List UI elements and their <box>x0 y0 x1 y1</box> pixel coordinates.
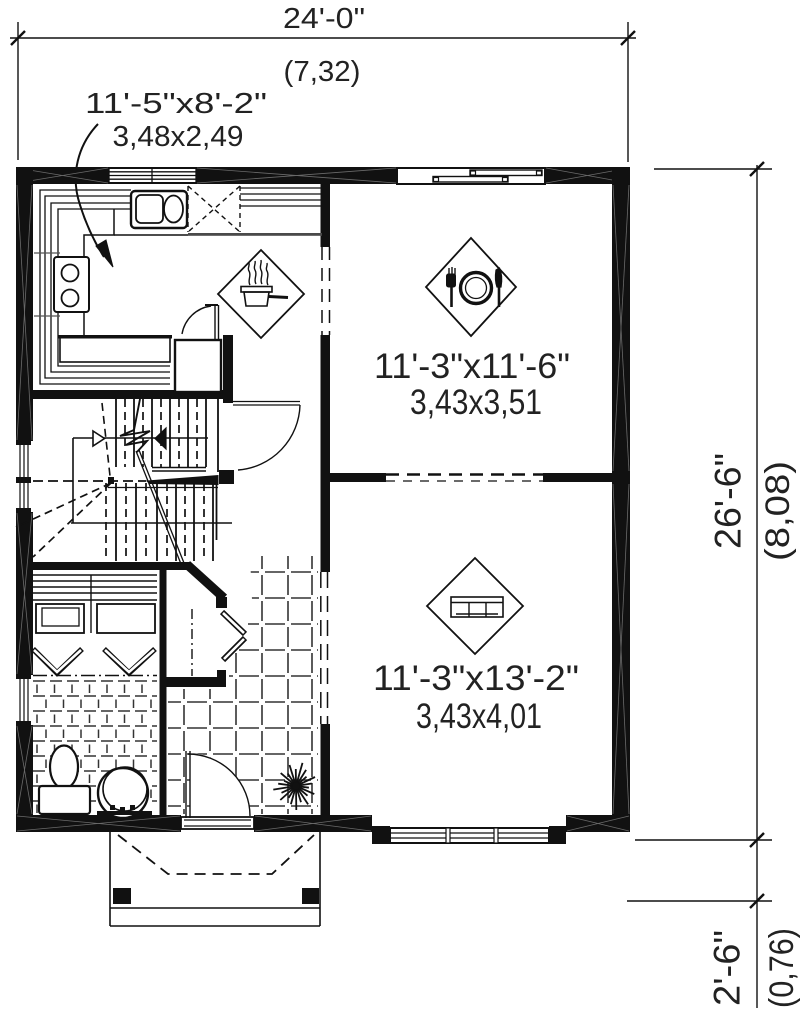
svg-text:3,48x2,49: 3,48x2,49 <box>113 121 244 153</box>
svg-text:(8,08): (8,08) <box>759 461 797 561</box>
svg-text:2'-6": 2'-6" <box>707 930 748 1006</box>
svg-text:24'-0": 24'-0" <box>283 3 365 35</box>
svg-text:(0,76): (0,76) <box>763 928 800 1008</box>
svg-text:3,43x4,01: 3,43x4,01 <box>416 697 542 736</box>
svg-text:(7,32): (7,32) <box>284 56 361 88</box>
svg-text:26'-6": 26'-6" <box>708 453 749 549</box>
svg-text:11'-3"x13'-2": 11'-3"x13'-2" <box>373 659 579 698</box>
svg-text:11'-3"x11'-6": 11'-3"x11'-6" <box>374 347 570 386</box>
svg-text:3,43x3,51: 3,43x3,51 <box>410 383 542 422</box>
svg-text:11'-5"x8'-2": 11'-5"x8'-2" <box>85 88 267 120</box>
